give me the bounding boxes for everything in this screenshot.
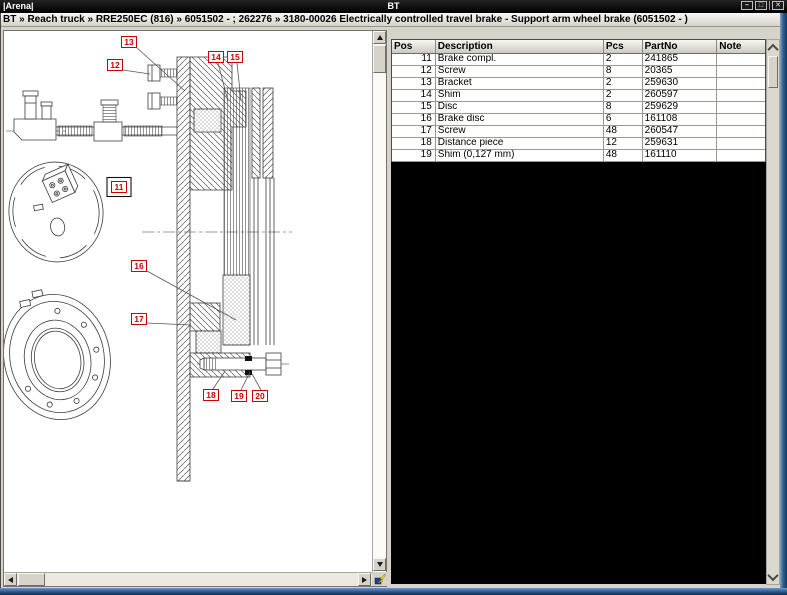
scroll-up-button[interactable] [373, 31, 386, 44]
chevron-up-icon [767, 43, 778, 54]
drawing-vertical-scrollbar[interactable] [372, 31, 386, 572]
callout-label: 18 [206, 390, 216, 400]
fit-drawing-tool-icon [374, 573, 386, 585]
triangle-right-icon [362, 577, 367, 583]
cell-pos: 14 [392, 90, 436, 101]
cell-description: Shim [436, 90, 604, 101]
cell-pos: 19 [392, 150, 436, 161]
table-scroll-down-button[interactable] [767, 569, 779, 584]
application-window: |Arena| BT – □ ✕ BT » Reach truck » RRE2… [0, 0, 787, 595]
leader-line-20 [252, 374, 261, 390]
cell-description: Shim (0,127 mm) [436, 150, 604, 161]
cell-partno: 161108 [643, 114, 718, 125]
table-void-area [391, 162, 766, 584]
callout-label: 19 [234, 391, 244, 401]
callout-11[interactable]: 11 [107, 178, 131, 197]
window-controls: – □ ✕ [741, 1, 784, 10]
cell-pos: 17 [392, 126, 436, 137]
wheel-disc-view [4, 155, 111, 270]
cell-pcs: 2 [604, 54, 643, 65]
corner-tool-button[interactable] [372, 572, 388, 586]
table-header-row: PosDescriptionPcsPartNoNote [392, 40, 765, 54]
cell-partno: 259630 [643, 78, 718, 89]
callout-label: 12 [110, 60, 120, 70]
brake-cross-section [148, 57, 289, 481]
hub-ring-view [4, 278, 122, 429]
cell-note [717, 126, 765, 137]
scroll-right-button[interactable] [358, 573, 371, 586]
technical-drawing: 11121314151617181920 [4, 31, 372, 572]
column-header-pcs: Pcs [604, 40, 643, 53]
callout-label: 16 [134, 261, 144, 271]
column-header-partno: PartNo [643, 40, 718, 53]
cell-partno: 20365 [643, 66, 718, 77]
cell-partno: 260547 [643, 126, 718, 137]
cell-pcs: 12 [604, 138, 643, 149]
cell-pcs: 8 [604, 102, 643, 113]
restore-icon[interactable]: □ [755, 1, 767, 10]
cell-description: Bracket [436, 78, 604, 89]
callout-12[interactable]: 12 [108, 60, 151, 75]
breadcrumb[interactable]: BT » Reach truck » RRE250EC (816) » 6051… [0, 13, 787, 27]
title-bar: |Arena| BT – □ ✕ [0, 0, 787, 13]
cell-partno: 161110 [643, 150, 718, 161]
cell-pos: 11 [392, 54, 436, 65]
cell-note [717, 138, 765, 149]
cell-description: Distance piece [436, 138, 604, 149]
table-body: 11Brake compl.224186512Screw82036513Brac… [392, 54, 765, 173]
cell-note [717, 90, 765, 101]
chevron-down-icon [767, 569, 778, 580]
cell-description: Brake compl. [436, 54, 604, 65]
triangle-up-icon [377, 35, 383, 40]
cell-description: Screw [436, 126, 604, 137]
window-title: BT [0, 1, 787, 11]
table-row[interactable]: 18Distance piece12259631 [392, 138, 765, 150]
table-row[interactable]: 14Shim2260597 [392, 90, 765, 102]
window-border-right [780, 13, 787, 595]
cell-pcs: 48 [604, 126, 643, 137]
scroll-down-button[interactable] [373, 558, 386, 571]
column-header-note: Note [717, 40, 765, 53]
cell-note [717, 78, 765, 89]
cell-pcs: 48 [604, 150, 643, 161]
callout-label: 13 [124, 37, 134, 47]
cell-note [717, 114, 765, 125]
window-border-bottom [0, 588, 787, 595]
minimize-icon[interactable]: – [741, 1, 753, 10]
column-header-description: Description [436, 40, 604, 53]
drawing-horizontal-scrollbar[interactable] [4, 572, 372, 586]
cell-note [717, 54, 765, 65]
scroll-left-button[interactable] [4, 573, 17, 586]
table-scroll-up-button[interactable] [767, 40, 779, 55]
cell-pos: 12 [392, 66, 436, 77]
callout-label: 20 [255, 391, 265, 401]
triangle-down-icon [377, 562, 383, 567]
table-scrollbar[interactable] [766, 39, 780, 585]
cell-pos: 15 [392, 102, 436, 113]
callout-label: 14 [211, 52, 221, 62]
drawing-viewport[interactable]: 11121314151617181920 [4, 31, 372, 572]
table-row[interactable]: 16Brake disc6161108 [392, 114, 765, 126]
cell-note [717, 102, 765, 113]
cell-description: Screw [436, 66, 604, 77]
cell-description: Brake disc [436, 114, 604, 125]
table-row[interactable]: 12Screw820365 [392, 66, 765, 78]
cell-note [717, 150, 765, 161]
close-icon[interactable]: ✕ [772, 1, 784, 10]
callout-label: 15 [230, 52, 240, 62]
table-scroll-thumb[interactable] [768, 56, 778, 88]
table-row[interactable]: 19Shim (0,127 mm)48161110 [392, 150, 765, 162]
cell-partno: 241865 [643, 54, 718, 65]
vertical-scroll-thumb[interactable] [373, 45, 386, 73]
cell-partno: 259631 [643, 138, 718, 149]
cell-pos: 18 [392, 138, 436, 149]
parts-table: PosDescriptionPcsPartNoNote 11Brake comp… [391, 39, 766, 174]
callout-label: 11 [115, 182, 124, 192]
table-row[interactable]: 17Screw48260547 [392, 126, 765, 138]
cell-pos: 13 [392, 78, 436, 89]
cell-description: Disc [436, 102, 604, 113]
cell-partno: 259629 [643, 102, 718, 113]
cell-partno: 260597 [643, 90, 718, 101]
button-separator [769, 1, 770, 10]
cell-pos: 16 [392, 114, 436, 125]
callout-20[interactable]: 20 [252, 374, 268, 402]
table-row[interactable]: 11Brake compl.2241865 [392, 54, 765, 66]
column-header-pos: Pos [392, 40, 436, 53]
cell-pcs: 6 [604, 114, 643, 125]
callout-13[interactable]: 13 [122, 37, 186, 92]
cell-note [717, 66, 765, 77]
table-row[interactable]: 15Disc8259629 [392, 102, 765, 114]
horizontal-scroll-thumb[interactable] [18, 573, 45, 586]
cell-pcs: 2 [604, 90, 643, 101]
window-border-left [0, 13, 1, 588]
cell-pcs: 2 [604, 78, 643, 89]
triangle-left-icon [8, 577, 13, 583]
callout-label: 17 [134, 314, 144, 324]
table-row[interactable]: 13Bracket2259630 [392, 78, 765, 90]
cell-pcs: 8 [604, 66, 643, 77]
leader-line-12 [123, 70, 150, 74]
drawing-panel: 11121314151617181920 [3, 30, 387, 587]
